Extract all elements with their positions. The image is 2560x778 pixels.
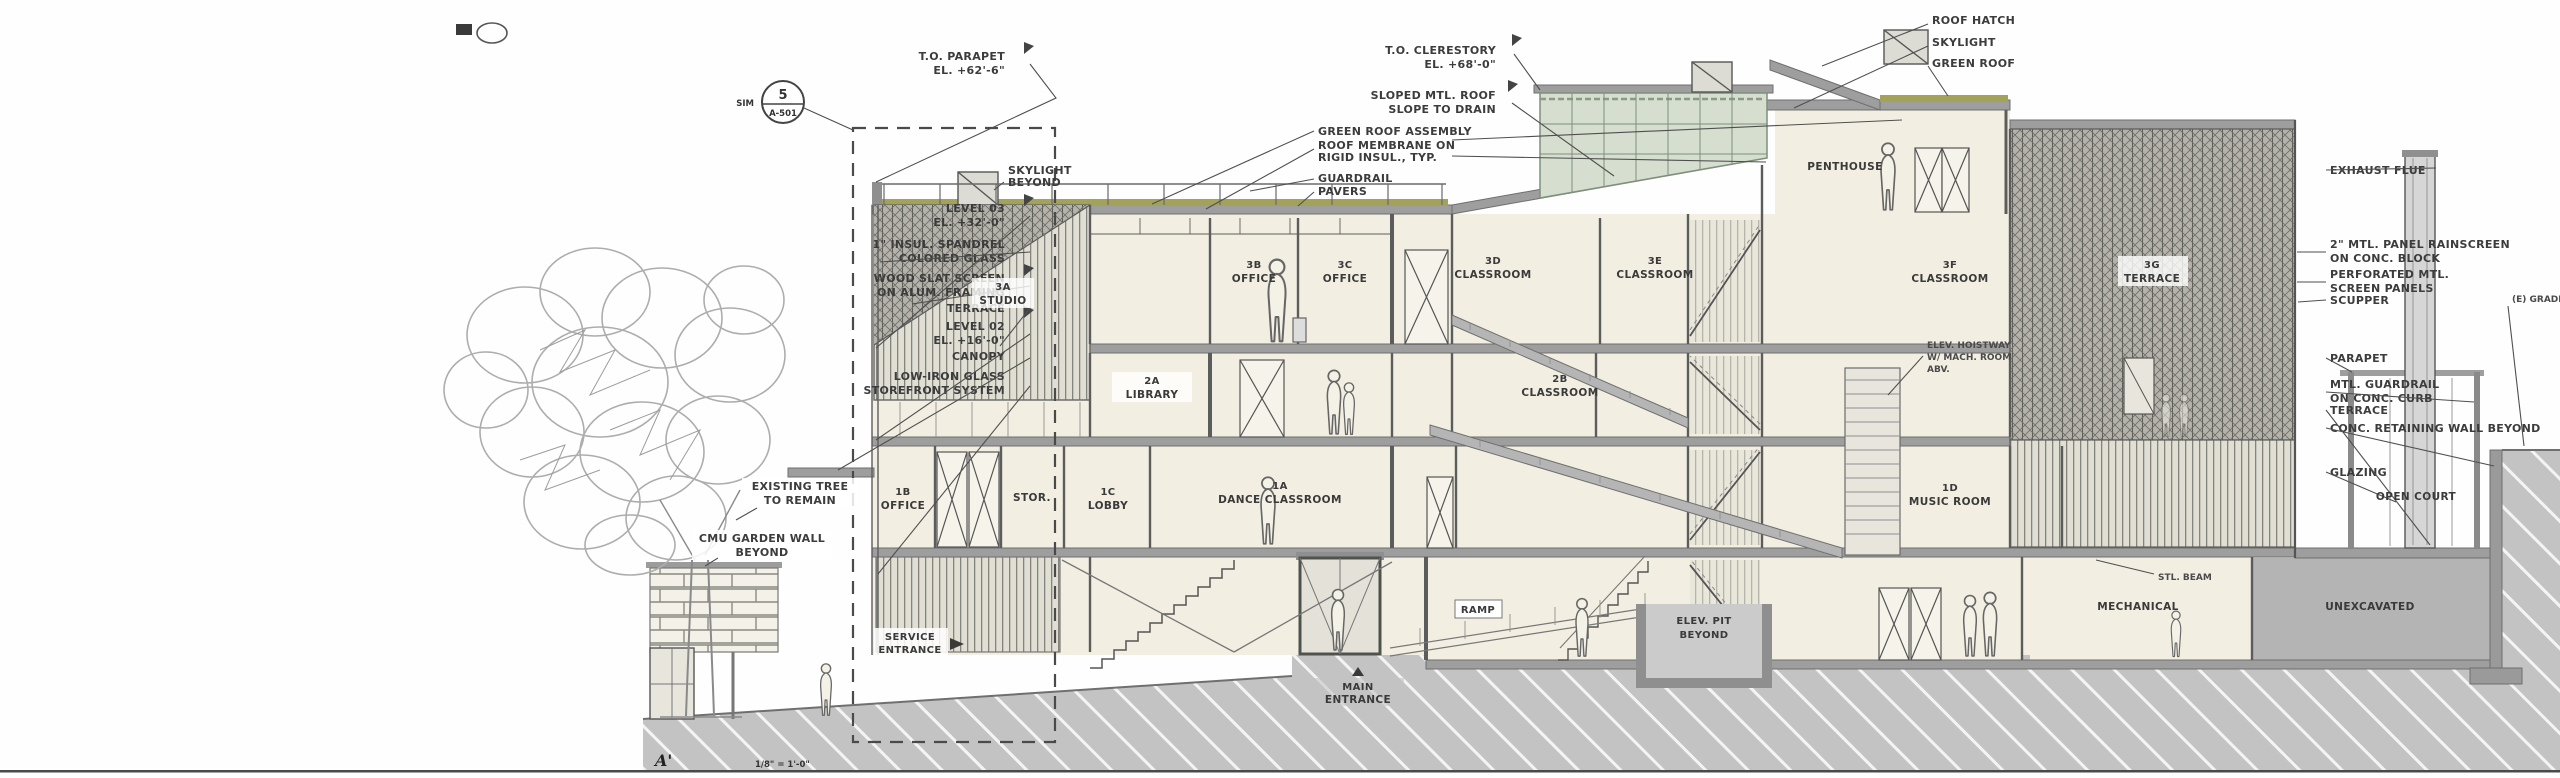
callout: TERRACE (2330, 404, 2388, 417)
callout: LOW-IRON GLASS (894, 370, 1005, 383)
room-label: ELEV. PIT (1676, 616, 1731, 627)
callout: STOREFRONT SYSTEM (863, 384, 1005, 397)
door-l1-b (969, 452, 999, 547)
callout: SCUPPER (2330, 294, 2389, 307)
svg-text:ENTRANCE: ENTRANCE (878, 645, 941, 656)
room-label-3a: 3A STUDIO (972, 278, 1034, 308)
door-l3 (1405, 250, 1448, 344)
callout: T.O. CLERESTORY (1385, 44, 1497, 57)
earth-hatch-right (2502, 450, 2560, 660)
room-label: OPEN COURT (2376, 491, 2457, 503)
room-label: CLASSROOM (1911, 273, 1988, 285)
flue-cap (2402, 150, 2438, 157)
callout: GREEN ROOF ASSEMBLY (1318, 125, 1472, 138)
room-label: CLASSROOM (1616, 269, 1693, 281)
callout: CONC. RETAINING WALL BEYOND (2330, 422, 2541, 435)
retaining-wall (2490, 450, 2502, 668)
room-label: 3C (1337, 260, 1352, 271)
ramp-label: RAMP (1455, 600, 1502, 618)
areaway-slab (2295, 548, 2500, 558)
tree-label: EXISTING TREE TO REMAIN (736, 478, 858, 520)
room-label-2a: 2A LIBRARY (1112, 372, 1192, 402)
screen-slat-band (2010, 440, 2295, 547)
room-label: 1B (895, 487, 910, 498)
room-label: STOR. (1013, 492, 1051, 504)
callout: SLOPED MTL. ROOF (1371, 89, 1496, 102)
callout: GREEN ROOF (1932, 57, 2015, 70)
svg-text:3A: 3A (995, 282, 1011, 293)
svg-text:STL. BEAM: STL. BEAM (2158, 573, 2212, 583)
callout: PAVERS (1318, 185, 1367, 198)
room-label: OFFICE (1323, 273, 1367, 285)
screen-bay-top-slab (2010, 120, 2295, 129)
room-label: CLASSROOM (1454, 269, 1531, 281)
callout: EL. +62'-6" (933, 64, 1005, 77)
wall-footing (2470, 668, 2522, 684)
room-label: PENTHOUSE (1807, 161, 1882, 173)
svg-text:2A: 2A (1144, 376, 1160, 387)
callout: PARAPET (2330, 352, 2388, 365)
callout: (E) GRADE (2512, 295, 2560, 305)
svg-text:BEYOND: BEYOND (736, 546, 789, 559)
callout: W/ MACH. ROOM (1927, 353, 2011, 363)
exhaust-flue (2405, 155, 2435, 548)
room-label: BEYOND (1680, 630, 1729, 641)
bubble-suffix: SIM (736, 99, 754, 109)
svg-text:EXISTING TREE: EXISTING TREE (752, 480, 849, 493)
svg-text:ENTRANCE: ENTRANCE (1325, 694, 1391, 706)
svg-text:CMU GARDEN WALL: CMU GARDEN WALL (699, 532, 825, 545)
clerestory-roof (1534, 85, 1773, 93)
architectural-section-page: 5 A-501 SIM T.O. PARAPET EL. +62'-6" LEV… (0, 0, 2560, 778)
room-label: 3F (1943, 260, 1958, 271)
door-l1-c (1427, 477, 1453, 548)
right-screen-bay (2010, 120, 2295, 558)
building-section-drawing: 5 A-501 SIM T.O. PARAPET EL. +62'-6" LEV… (0, 0, 2560, 778)
callout: PERFORATED MTL. (2330, 268, 2449, 281)
callout: EL. +32'-0" (933, 216, 1005, 229)
key-plan-blob (456, 23, 507, 43)
svg-text:STUDIO: STUDIO (979, 295, 1026, 307)
room-label: 3B (1246, 260, 1261, 271)
door-l2 (1240, 360, 1284, 437)
svg-text:MAIN: MAIN (1342, 682, 1373, 693)
room-label: MUSIC ROOM (1909, 496, 1991, 508)
callout: ON CONC. BLOCK (2330, 252, 2440, 265)
rolling-bag (1293, 318, 1306, 342)
callout: SKYLIGHT (1932, 36, 1996, 49)
room-label: OFFICE (881, 500, 925, 512)
svg-text:RAMP: RAMP (1461, 605, 1495, 616)
room-label: UNEXCAVATED (2325, 601, 2415, 613)
room-label: CLASSROOM (1521, 387, 1598, 399)
room-label: 1C (1100, 487, 1115, 498)
callout: ELEV. HOISTWAY (1927, 341, 2011, 351)
svg-text:TERRACE: TERRACE (2124, 273, 2180, 285)
callout: LEVEL 02 (946, 320, 1005, 333)
callout: BEYOND (1008, 176, 1061, 189)
callout: 2" MTL. PANEL RAINSCREEN (2330, 238, 2510, 251)
room-label-3g: 3G TERRACE (2118, 256, 2188, 286)
callout: LEVEL 03 (946, 202, 1005, 215)
callout: 1" INSUL. SPANDREL (872, 238, 1005, 251)
clerestory-glazing (1540, 93, 1767, 198)
scale-note: 1/8" = 1'-0" (755, 760, 810, 770)
room-label: OFFICE (1232, 273, 1276, 285)
svg-text:SERVICE: SERVICE (885, 632, 935, 643)
svg-text:LIBRARY: LIBRARY (1126, 389, 1179, 401)
callout: EL. +68'-0" (1424, 58, 1496, 71)
bubble-sheet: A-501 (769, 109, 797, 119)
callout: RIGID INSUL., TYP. (1318, 151, 1437, 164)
green-roof-tower (1880, 95, 2008, 102)
callout: EL. +16'-0" (933, 334, 1005, 347)
key-bubble: 5 A-501 SIM (736, 81, 853, 130)
entry-canopy (788, 468, 874, 477)
callout: GUARDRAIL (1318, 172, 1393, 185)
room-label: 3E (1648, 256, 1663, 267)
svg-text:3G: 3G (2144, 260, 2160, 271)
callout: MTL. GUARDRAIL (2330, 378, 2440, 391)
callout: EXHAUST FLUE (2330, 164, 2426, 177)
cmu-wall-label: CMU GARDEN WALL BEYOND (692, 530, 832, 566)
elevator-shaft (1845, 368, 1900, 555)
room-label: 2B (1552, 374, 1567, 385)
section-cut-mark: A' (653, 751, 672, 770)
room-label: DANCE CLASSROOM (1218, 494, 1342, 506)
bubble-number: 5 (778, 88, 787, 103)
rail-post-right (2474, 372, 2480, 548)
sheet-bottom-rule (0, 770, 2560, 773)
room-label: 1D (1942, 483, 1958, 494)
door-l1-a (937, 452, 967, 547)
callout: SLOPE TO DRAIN (1388, 103, 1496, 116)
room-label: LOBBY (1088, 500, 1128, 512)
basement-floor-slab (1426, 660, 2492, 669)
room-label: MECHANICAL (2097, 601, 2178, 613)
callout: T.O. PARAPET (919, 50, 1006, 63)
callout: ROOF HATCH (1932, 14, 2015, 27)
svg-text:TO REMAIN: TO REMAIN (764, 494, 836, 507)
room-label: 1A (1272, 481, 1288, 492)
slab-l1 (872, 548, 2295, 557)
callout: COLORED GLASS (899, 252, 1005, 265)
callout: ABV. (1927, 365, 1950, 375)
door-penthouse (1915, 148, 1969, 212)
room-label: 3D (1485, 256, 1501, 267)
